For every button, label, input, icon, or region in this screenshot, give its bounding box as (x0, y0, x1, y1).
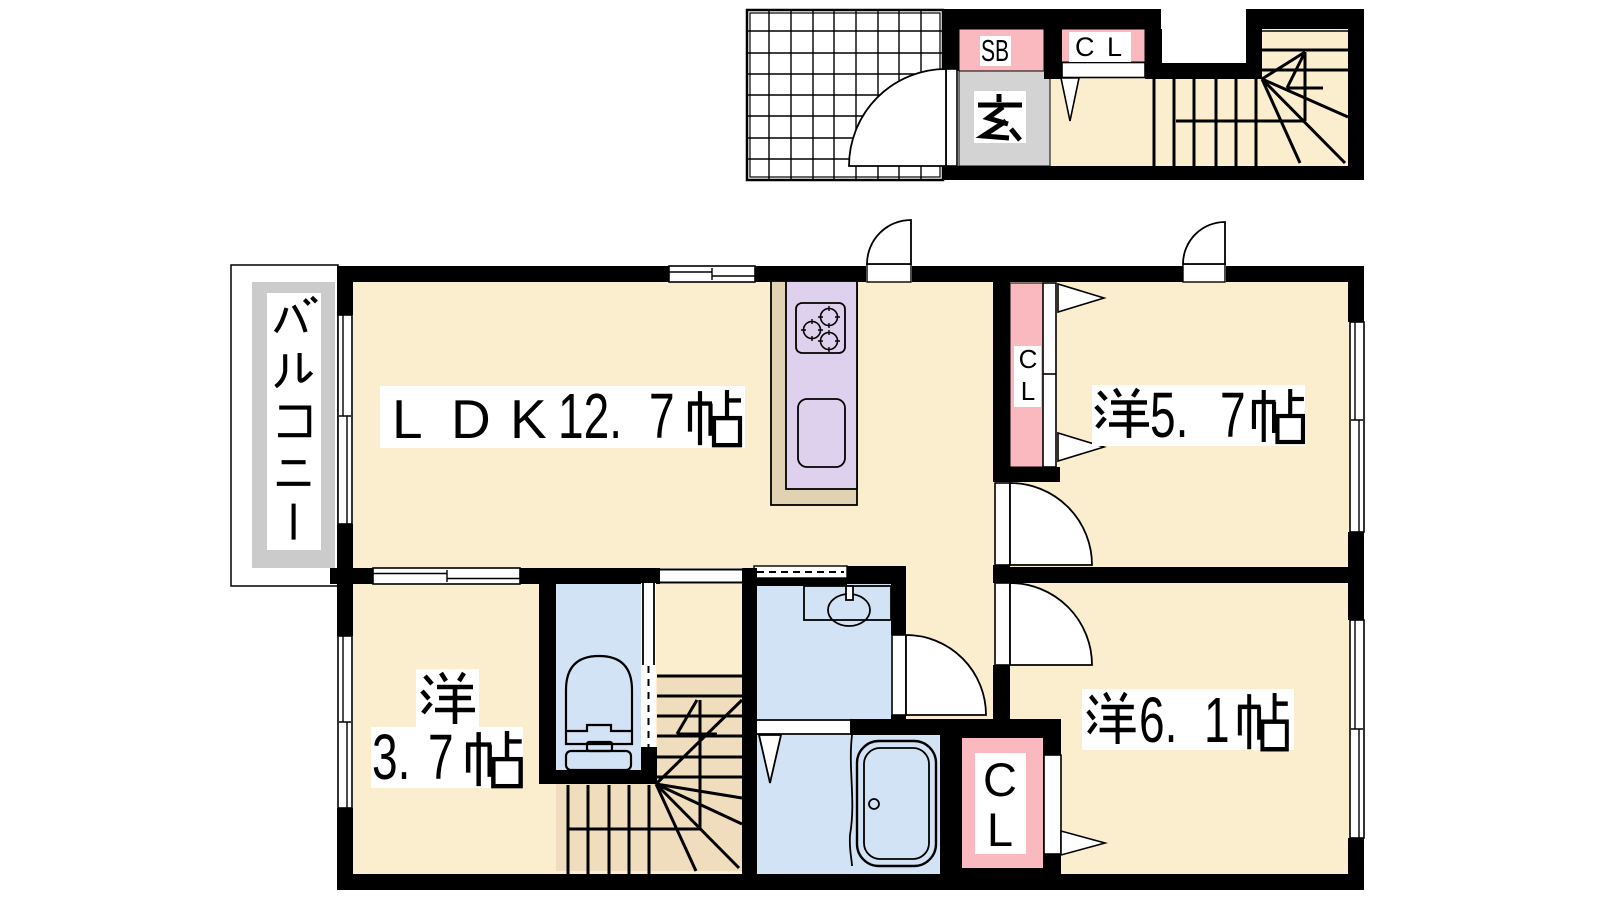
svg-text:12.: 12. (558, 381, 622, 452)
svg-text:L: L (392, 388, 423, 450)
svg-text:L: L (987, 803, 1013, 856)
svg-text:7: 7 (1220, 380, 1246, 451)
svg-text:C: C (1019, 344, 1038, 374)
svg-text:1: 1 (1204, 685, 1230, 756)
svg-text:L: L (1021, 376, 1035, 406)
svg-text:D: D (451, 388, 491, 450)
svg-text:6.: 6. (1139, 685, 1177, 756)
svg-text:7: 7 (428, 722, 454, 793)
svg-text:7: 7 (649, 381, 675, 452)
svg-text:5.: 5. (1150, 380, 1188, 451)
svg-text:L: L (1107, 32, 1122, 62)
svg-text:3.: 3. (372, 722, 410, 793)
svg-text:SB: SB (981, 33, 1009, 68)
svg-text:K: K (510, 388, 547, 450)
svg-text:C: C (1075, 32, 1095, 62)
svg-text:C: C (983, 753, 1017, 806)
